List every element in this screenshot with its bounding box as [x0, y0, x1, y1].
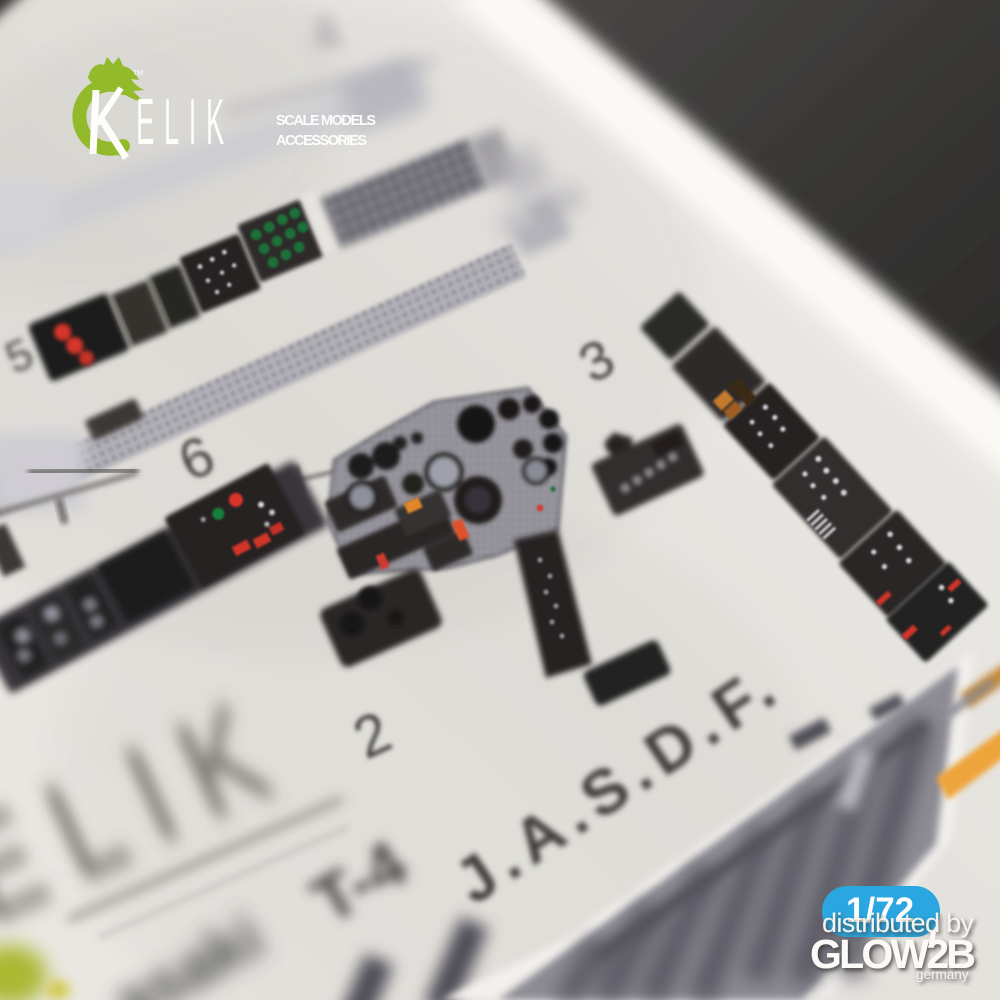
svg-text:germany: germany — [916, 967, 969, 982]
svg-text:ACCESSORIES: ACCESSORIES — [276, 133, 369, 149]
svg-text:ELIK: ELIK — [136, 85, 234, 158]
svg-text:SCALE MODELS: SCALE MODELS — [276, 113, 378, 129]
svg-text:TM: TM — [133, 70, 143, 77]
